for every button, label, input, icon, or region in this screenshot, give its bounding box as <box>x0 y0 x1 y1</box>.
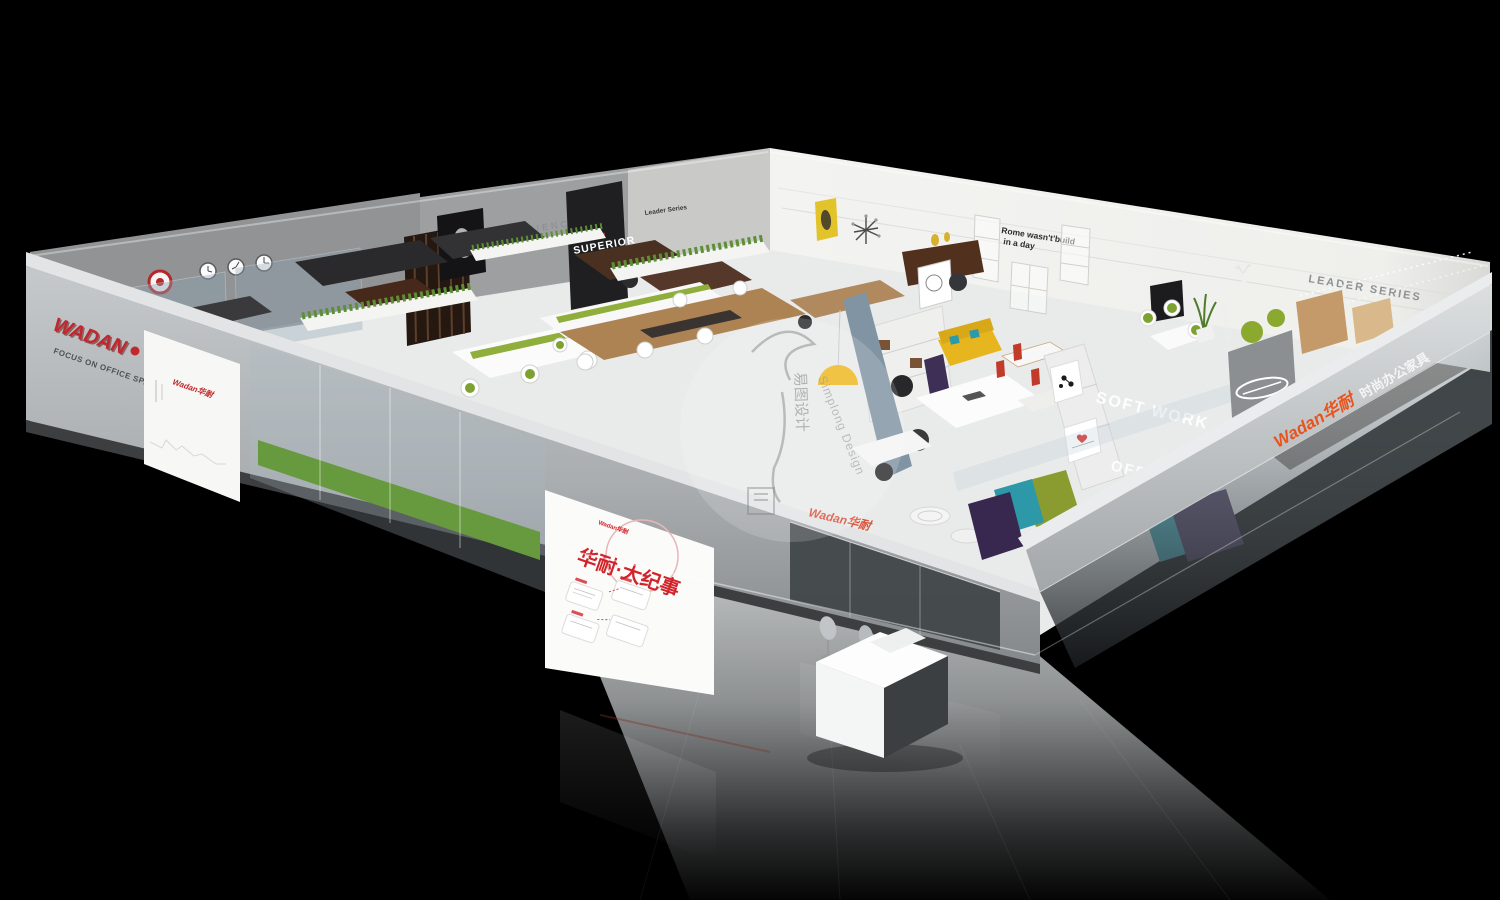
lime-armchair <box>1267 309 1285 327</box>
vase <box>944 232 950 242</box>
watermark: 易图设计 Simplong Design <box>680 318 904 542</box>
wood-box <box>910 358 922 368</box>
chair <box>577 354 593 370</box>
chair <box>673 293 687 307</box>
leaning-frame <box>918 260 952 309</box>
chair <box>637 342 653 358</box>
vase <box>931 234 939 246</box>
showroom-render: EXPERIENCE SUPERIOR Leader Series <box>0 0 1500 900</box>
logo-dot-icon <box>131 347 140 356</box>
render-canvas: EXPERIENCE SUPERIOR Leader Series <box>0 0 1500 900</box>
round-table <box>910 507 950 525</box>
yellow-poster <box>815 198 838 241</box>
chair <box>733 281 747 295</box>
disc-art <box>949 273 967 291</box>
chair <box>697 328 713 344</box>
watermark-cn-text: 易图设计 <box>791 372 810 433</box>
lime-armchair <box>1241 321 1263 343</box>
